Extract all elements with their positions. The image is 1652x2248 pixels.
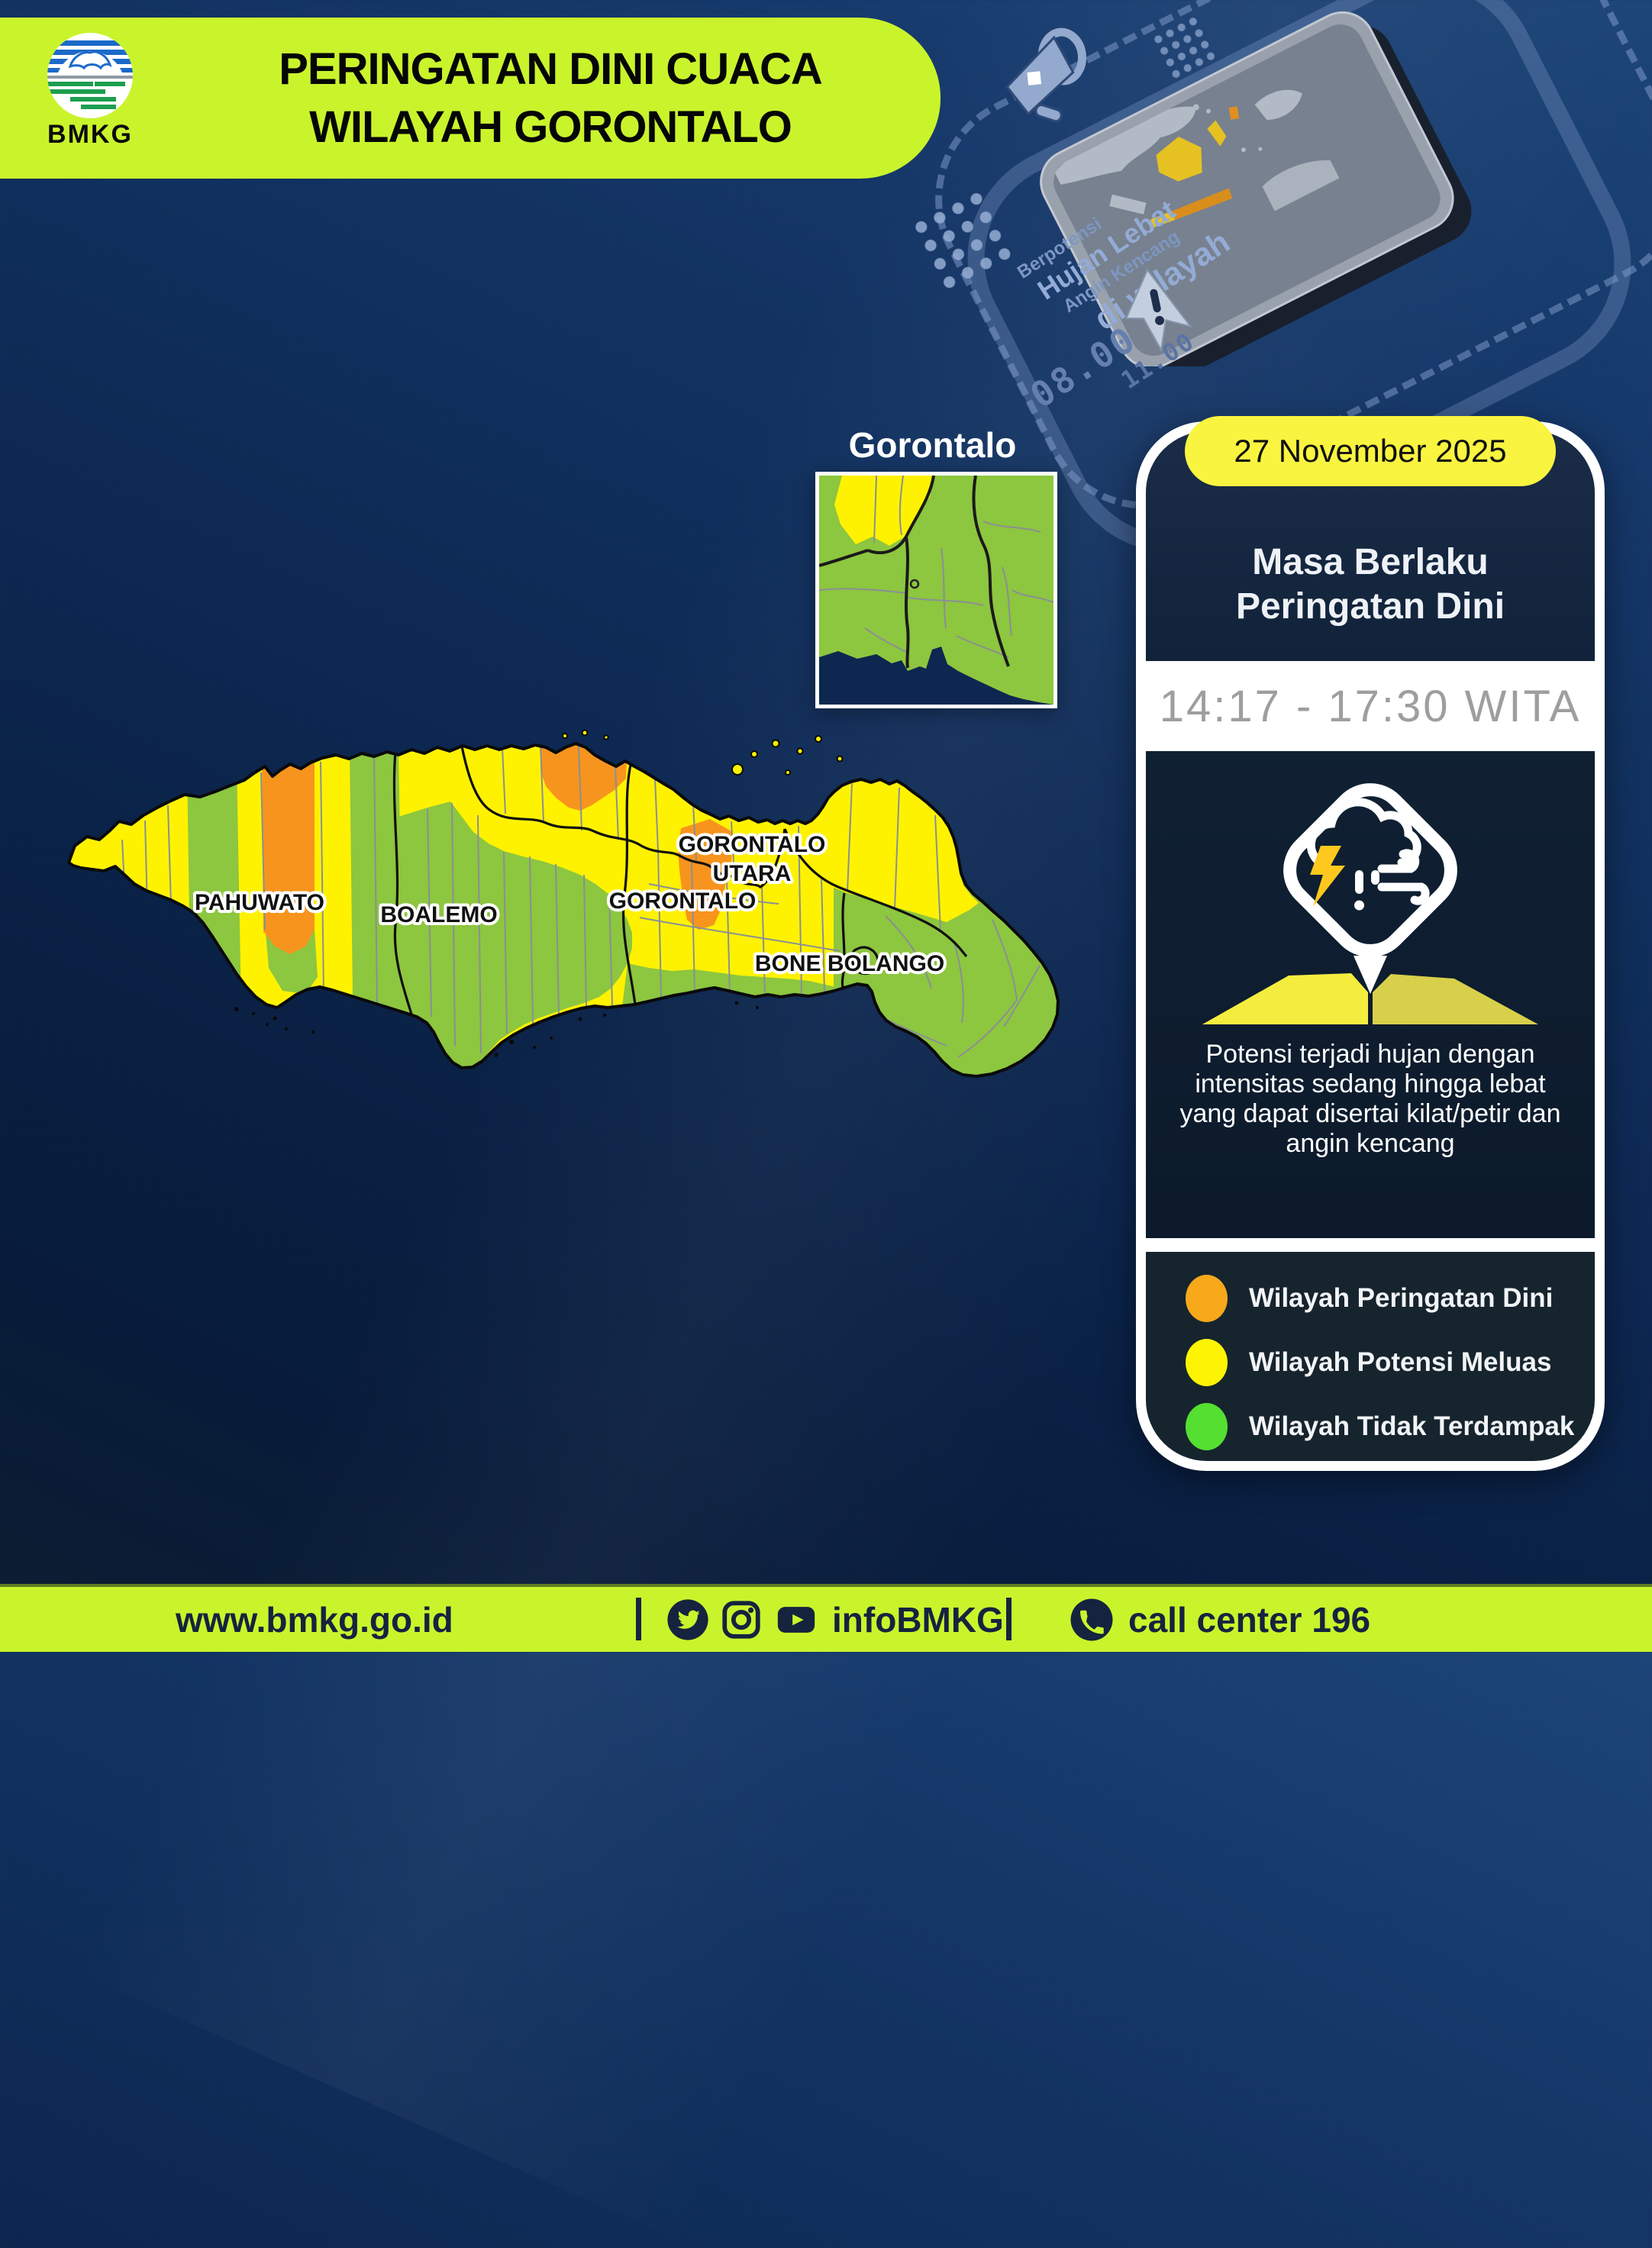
clock-primary: 08.00 xyxy=(1023,292,1184,416)
map-label-gorontalo-utara-1: GORONTALO xyxy=(679,832,826,857)
phone-with-map xyxy=(1008,0,1496,366)
legend-panel: Wilayah Peringatan Dini Wilayah Potensi … xyxy=(1146,1252,1595,1461)
decor-line-1: Berpotensi xyxy=(1014,160,1187,283)
header-banner: BMKG PERINGATAN DINI CUACA WILAYAH GORON… xyxy=(0,18,941,179)
decor-caption: Berpotensi Hujan Lebat Angin Kencang di … xyxy=(1014,160,1236,359)
bmkg-logo-label: BMKG xyxy=(29,120,151,150)
time-range: 14:17 - 17:30 WITA xyxy=(1160,681,1582,732)
megaphone-icon xyxy=(980,21,1105,132)
warning-info-card: 27 November 2025 Masa Berlaku Peringatan… xyxy=(1136,421,1605,1471)
footer-call-center[interactable]: call center 196 xyxy=(1128,1587,1370,1652)
youtube-icon[interactable] xyxy=(773,1587,820,1652)
decor-line-2: Hujan Lebat xyxy=(1032,179,1205,306)
legend-label-unaffected: Wilayah Tidak Terdampak xyxy=(1249,1411,1574,1442)
footer-separator-2 xyxy=(1006,1598,1012,1640)
bmkg-logo-icon xyxy=(47,33,133,118)
map-label-bone-bolango: BONE BOLANGO xyxy=(755,951,944,976)
decor-clocks: 08.00 11.00 xyxy=(1023,292,1200,440)
legend-swatch-green xyxy=(1186,1403,1228,1450)
instagram-icon[interactable] xyxy=(719,1587,763,1652)
legend-row-spreading: Wilayah Potensi Meluas xyxy=(1186,1339,1595,1386)
date-text: 27 November 2025 xyxy=(1234,433,1506,469)
dot-grid-left xyxy=(908,184,1023,299)
validity-line1: Masa Berlaku xyxy=(1252,540,1489,585)
footer-bar: www.bmkg.go.id infoBMKG call center 196 xyxy=(0,1584,1652,1652)
page-title-line2: WILAYAH GORONTALO xyxy=(309,98,792,156)
map-label-pahuwato: PAHUWATO xyxy=(195,890,324,915)
bmkg-logo: BMKG xyxy=(29,33,151,150)
page-title: PERINGATAN DINI CUACA WILAYAH GORONTALO xyxy=(198,18,902,179)
legend-label-spreading: Wilayah Potensi Meluas xyxy=(1249,1347,1551,1378)
card-divider xyxy=(1146,1238,1595,1252)
warning-cursor-icon xyxy=(1115,260,1201,360)
legend-swatch-orange xyxy=(1186,1275,1228,1322)
validity-line2: Peringatan Dini xyxy=(1236,585,1505,629)
map-label-gorontalo: GORONTALO xyxy=(609,889,757,914)
hazard-description: Potensi terjadi hujan dengan intensitas … xyxy=(1146,1040,1595,1159)
footer-social-handle[interactable]: infoBMKG xyxy=(832,1587,1004,1652)
legend-swatch-yellow xyxy=(1186,1339,1228,1386)
inset-map xyxy=(815,472,1057,708)
legend-label-warning: Wilayah Peringatan Dini xyxy=(1249,1283,1553,1314)
map-label-boalemo: BOALEMO xyxy=(380,902,497,927)
clock-secondary: 11.00 xyxy=(1116,326,1200,395)
time-band: 14:17 - 17:30 WITA xyxy=(1146,661,1595,751)
dot-grid-right xyxy=(1150,12,1221,84)
footer-separator-1 xyxy=(636,1598,641,1640)
date-pill: 27 November 2025 xyxy=(1185,416,1556,486)
decor-line-4: di wilayah xyxy=(1088,224,1236,338)
twitter-icon[interactable] xyxy=(666,1587,710,1652)
gorontalo-warning-map: PAHUWATO BOALEMO GORONTALO GORONTALO UTA… xyxy=(46,725,1130,1107)
page-title-line1: PERINGATAN DINI CUACA xyxy=(279,40,822,98)
legend-row-warning: Wilayah Peringatan Dini xyxy=(1186,1275,1595,1322)
phone-icon xyxy=(1069,1587,1115,1652)
map-label-gorontalo-utara-2: UTARA xyxy=(713,861,792,886)
hazard-section: Potensi terjadi hujan dengan intensitas … xyxy=(1146,751,1595,1238)
inset-map-title: Gorontalo xyxy=(815,424,1050,466)
decor-line-3: Angin Kencang xyxy=(1060,205,1216,318)
storm-warning-icon xyxy=(1199,772,1542,1026)
footer-website[interactable]: www.bmkg.go.id xyxy=(176,1587,453,1652)
legend-row-unaffected: Wilayah Tidak Terdampak xyxy=(1186,1403,1595,1450)
